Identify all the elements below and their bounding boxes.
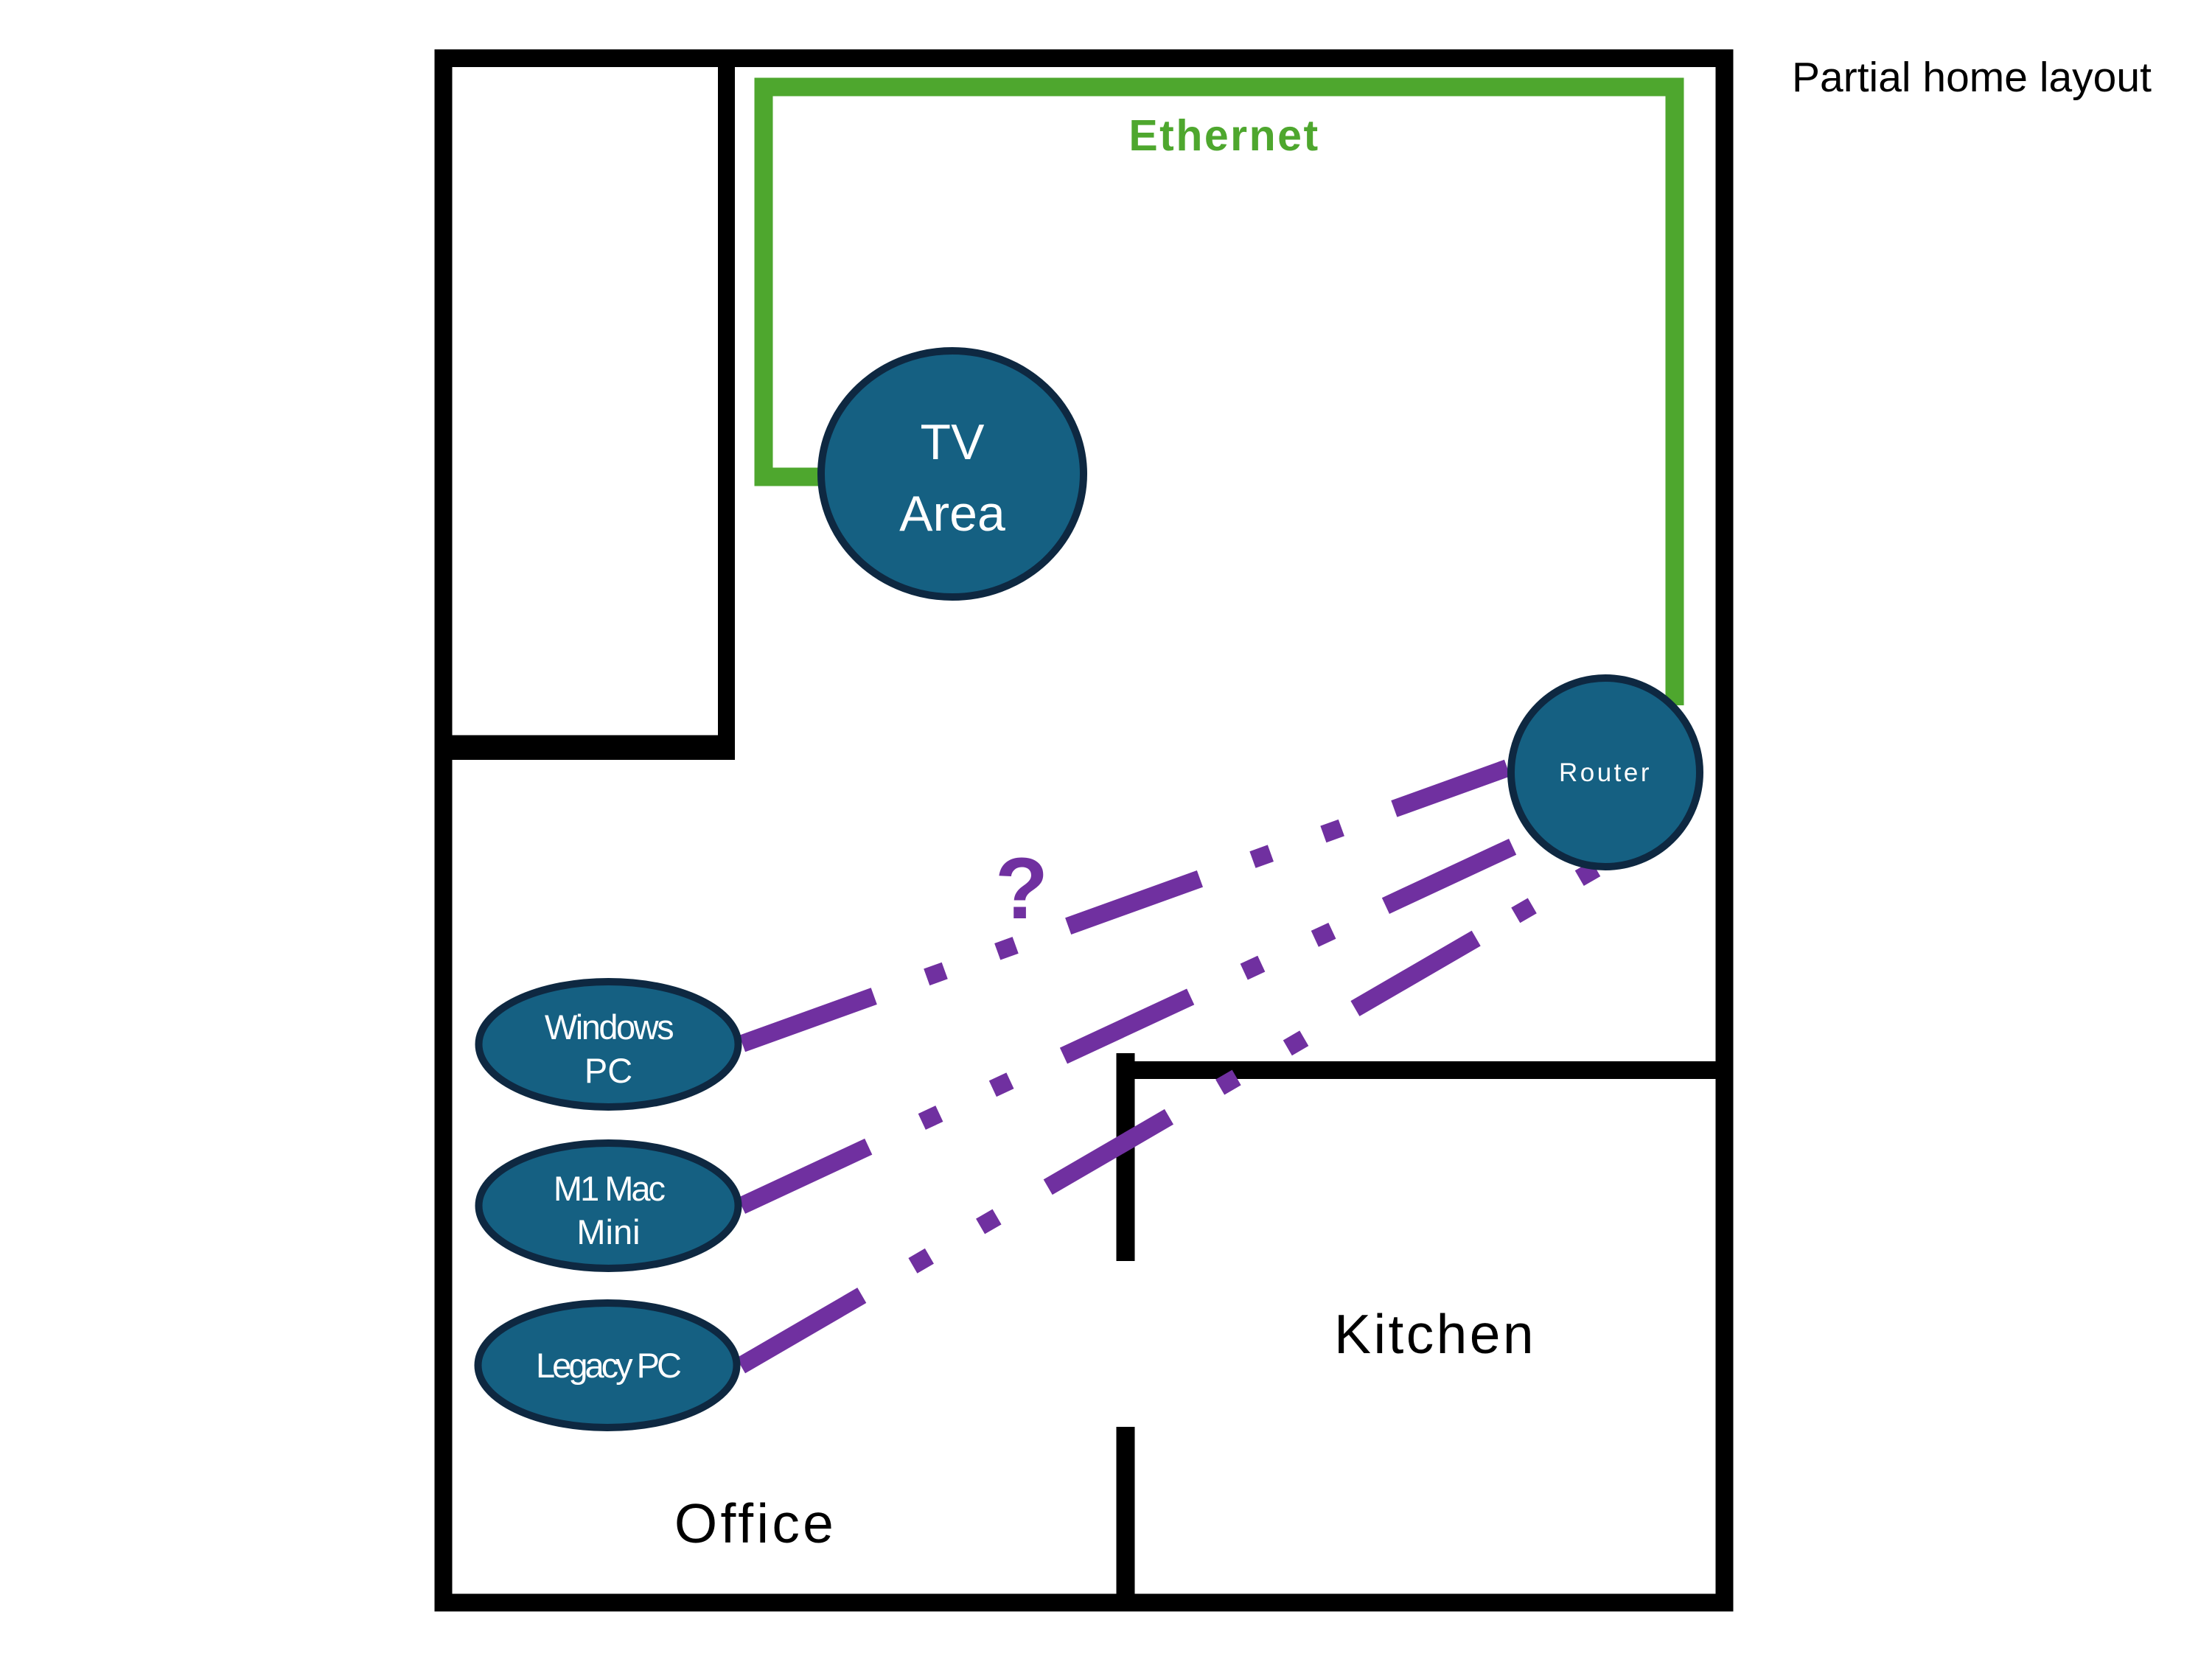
svg-text:Office: Office — [674, 1492, 837, 1554]
svg-text:Ethernet: Ethernet — [1128, 111, 1319, 160]
svg-text:Mini: Mini — [576, 1212, 640, 1251]
svg-text:TV: TV — [921, 414, 985, 470]
svg-text:Kitchen: Kitchen — [1334, 1303, 1536, 1365]
svg-text:Legacy PC: Legacy PC — [536, 1346, 681, 1385]
svg-text:Area: Area — [899, 486, 1005, 542]
svg-text:Router: Router — [1559, 758, 1652, 787]
svg-text:M1 Mac: M1 Mac — [554, 1169, 666, 1208]
svg-text:Windows: Windows — [545, 1007, 673, 1047]
svg-text:?: ? — [995, 840, 1048, 937]
svg-text:Partial home layout: Partial home layout — [1792, 54, 2152, 101]
svg-text:PC: PC — [585, 1051, 632, 1090]
